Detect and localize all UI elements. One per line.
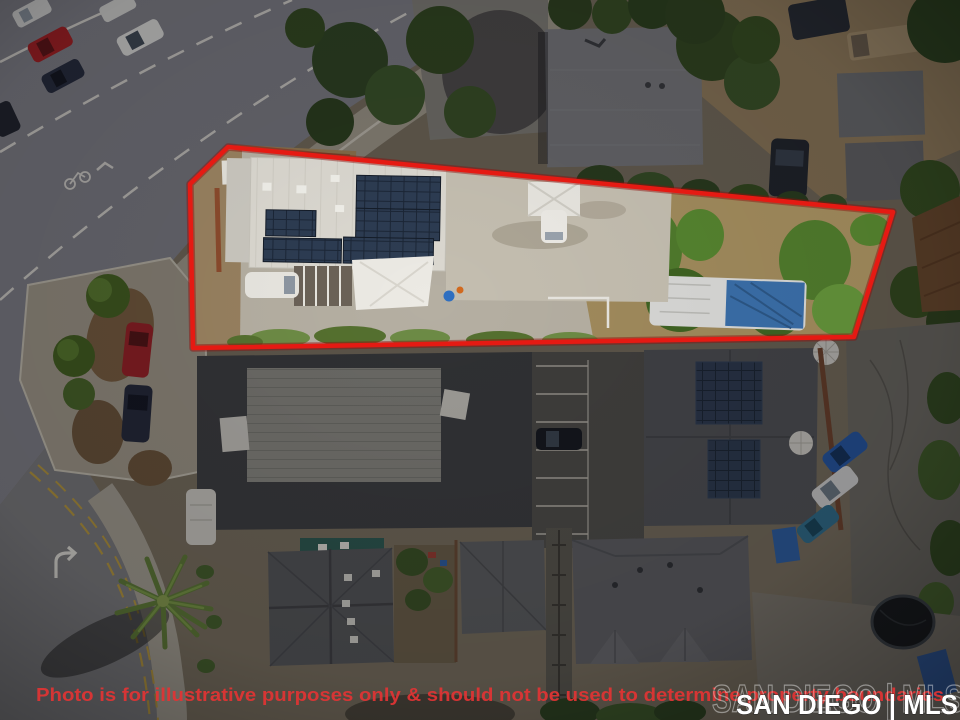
vignette-overlay [0,0,960,720]
watermark-text: SAN DIEGO | MLS [736,689,958,720]
aerial-photo-canvas: Photo is for illustrative purposes only … [0,0,960,720]
aerial-photo: Photo is for illustrative purposes only … [0,0,960,720]
